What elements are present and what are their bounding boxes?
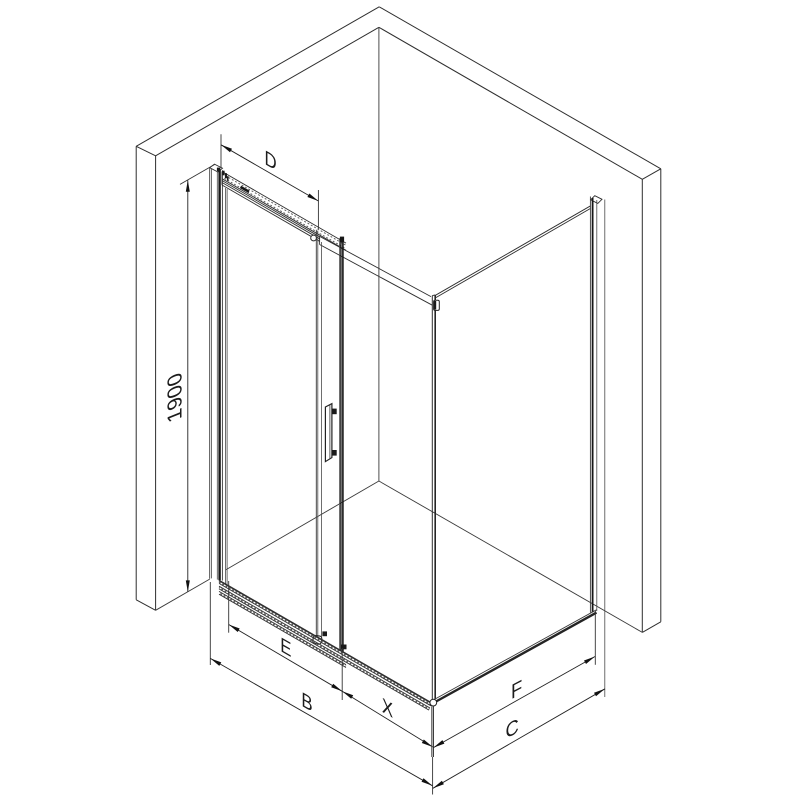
svg-text:1900: 1900 [163, 369, 186, 426]
